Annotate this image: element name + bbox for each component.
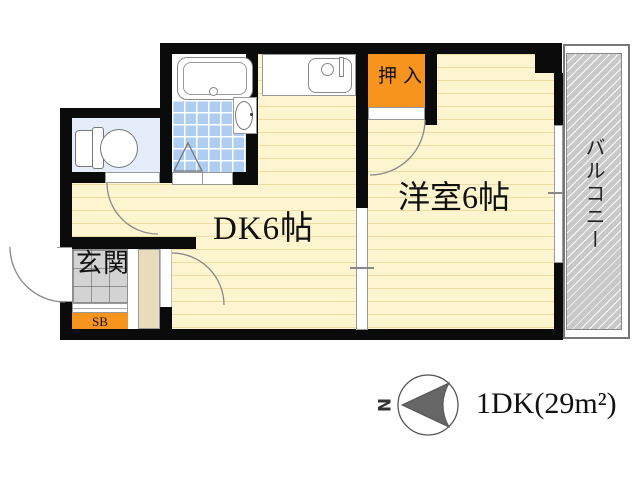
wall-left-lower <box>60 302 72 340</box>
entrance-partition <box>138 249 160 329</box>
bathroom-door-divider <box>202 173 203 184</box>
balcony-label: バルコニー <box>583 137 603 252</box>
wall-toilet-bottom <box>60 172 105 183</box>
balcony-window <box>554 125 563 263</box>
shoe-box-label: SB <box>72 315 128 328</box>
wall-bathroom-left <box>160 43 172 183</box>
sliding-door-dk-western <box>356 208 368 330</box>
bathroom-folding-door <box>172 172 233 185</box>
faucet-handle <box>339 57 344 77</box>
outside-area-top-left <box>0 0 160 108</box>
closet-label: 押入 <box>378 67 428 86</box>
wall-toilet-top <box>60 108 172 118</box>
wall-top-right-step <box>535 54 562 73</box>
compass-north-letter: N <box>373 398 393 412</box>
area-summary-label: 1DK(29m²) <box>476 389 617 419</box>
wall-bathroom-bottom-stub <box>233 172 258 185</box>
sliding-door-tick <box>350 267 374 269</box>
dk-room-label: DK6帖 <box>213 213 314 246</box>
entrance-step-line <box>73 308 127 309</box>
compass-north-arrow-icon <box>402 383 449 427</box>
toilet-door <box>105 172 160 183</box>
wall-bottom <box>60 329 563 340</box>
washbasin-faucet-dot <box>250 113 253 116</box>
toilet-bowl <box>100 129 138 168</box>
wall-dk-western-divider <box>356 43 368 208</box>
entry-door-opening <box>57 247 72 302</box>
floor-plan: N DK6帖 洋室6帖 押入 玄関 SB バルコニー 1DK(29m²) <box>0 0 640 480</box>
wall-east-upper <box>554 73 563 125</box>
faucet-icon <box>321 63 334 76</box>
compass-circle <box>398 375 458 435</box>
bathtub-drain <box>209 87 218 96</box>
entrance-step <box>72 303 128 313</box>
wall-entrance-right <box>160 307 172 340</box>
entrance-label: 玄関 <box>76 251 130 277</box>
wall-entrance-top <box>60 237 196 249</box>
western-room-door-leaf <box>368 107 425 120</box>
western-room-label: 洋室6帖 <box>398 181 510 213</box>
dk-door-opening <box>160 249 172 307</box>
